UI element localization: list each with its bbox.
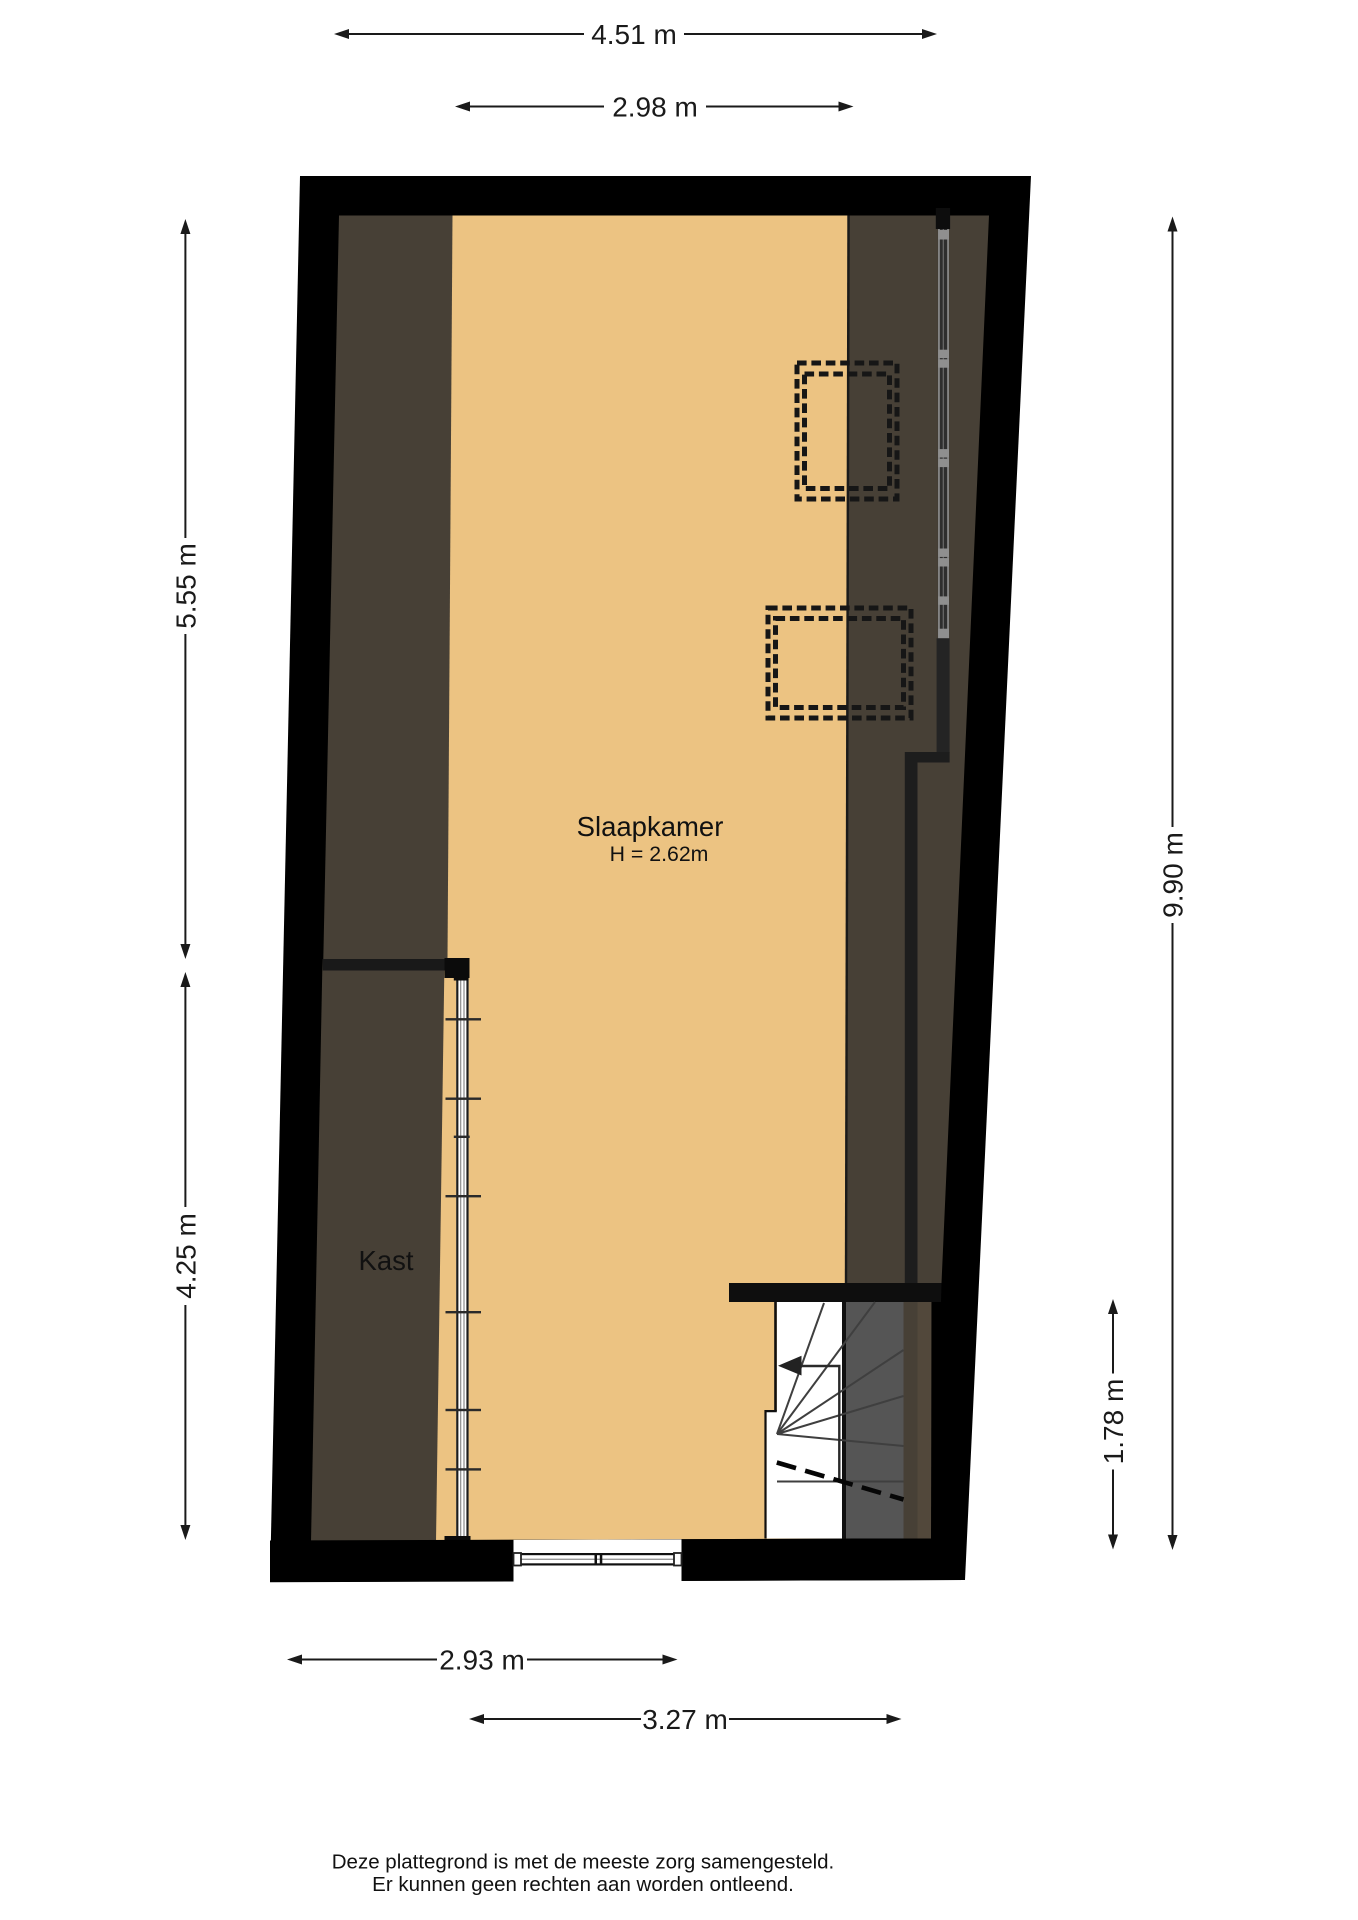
- svg-text:Deze plattegrond is met de mee: Deze plattegrond is met de meeste zorg s…: [332, 1851, 835, 1874]
- svg-text:Er kunnen geen rechten aan wor: Er kunnen geen rechten aan worden ontlee…: [372, 1873, 794, 1896]
- svg-text:Slaapkamer: Slaapkamer: [577, 811, 724, 842]
- svg-text:1.78 m: 1.78 m: [1098, 1379, 1129, 1465]
- svg-text:3.27 m: 3.27 m: [642, 1704, 728, 1735]
- svg-text:2.93 m: 2.93 m: [439, 1645, 525, 1676]
- svg-text:4.25 m: 4.25 m: [170, 1213, 201, 1299]
- svg-text:5.55 m: 5.55 m: [170, 543, 201, 629]
- svg-text:H = 2.62m: H = 2.62m: [610, 842, 709, 866]
- svg-text:Kast: Kast: [358, 1245, 413, 1276]
- svg-text:4.51 m: 4.51 m: [591, 19, 677, 50]
- svg-text:2.98 m: 2.98 m: [612, 92, 698, 123]
- svg-text:9.90 m: 9.90 m: [1158, 832, 1189, 918]
